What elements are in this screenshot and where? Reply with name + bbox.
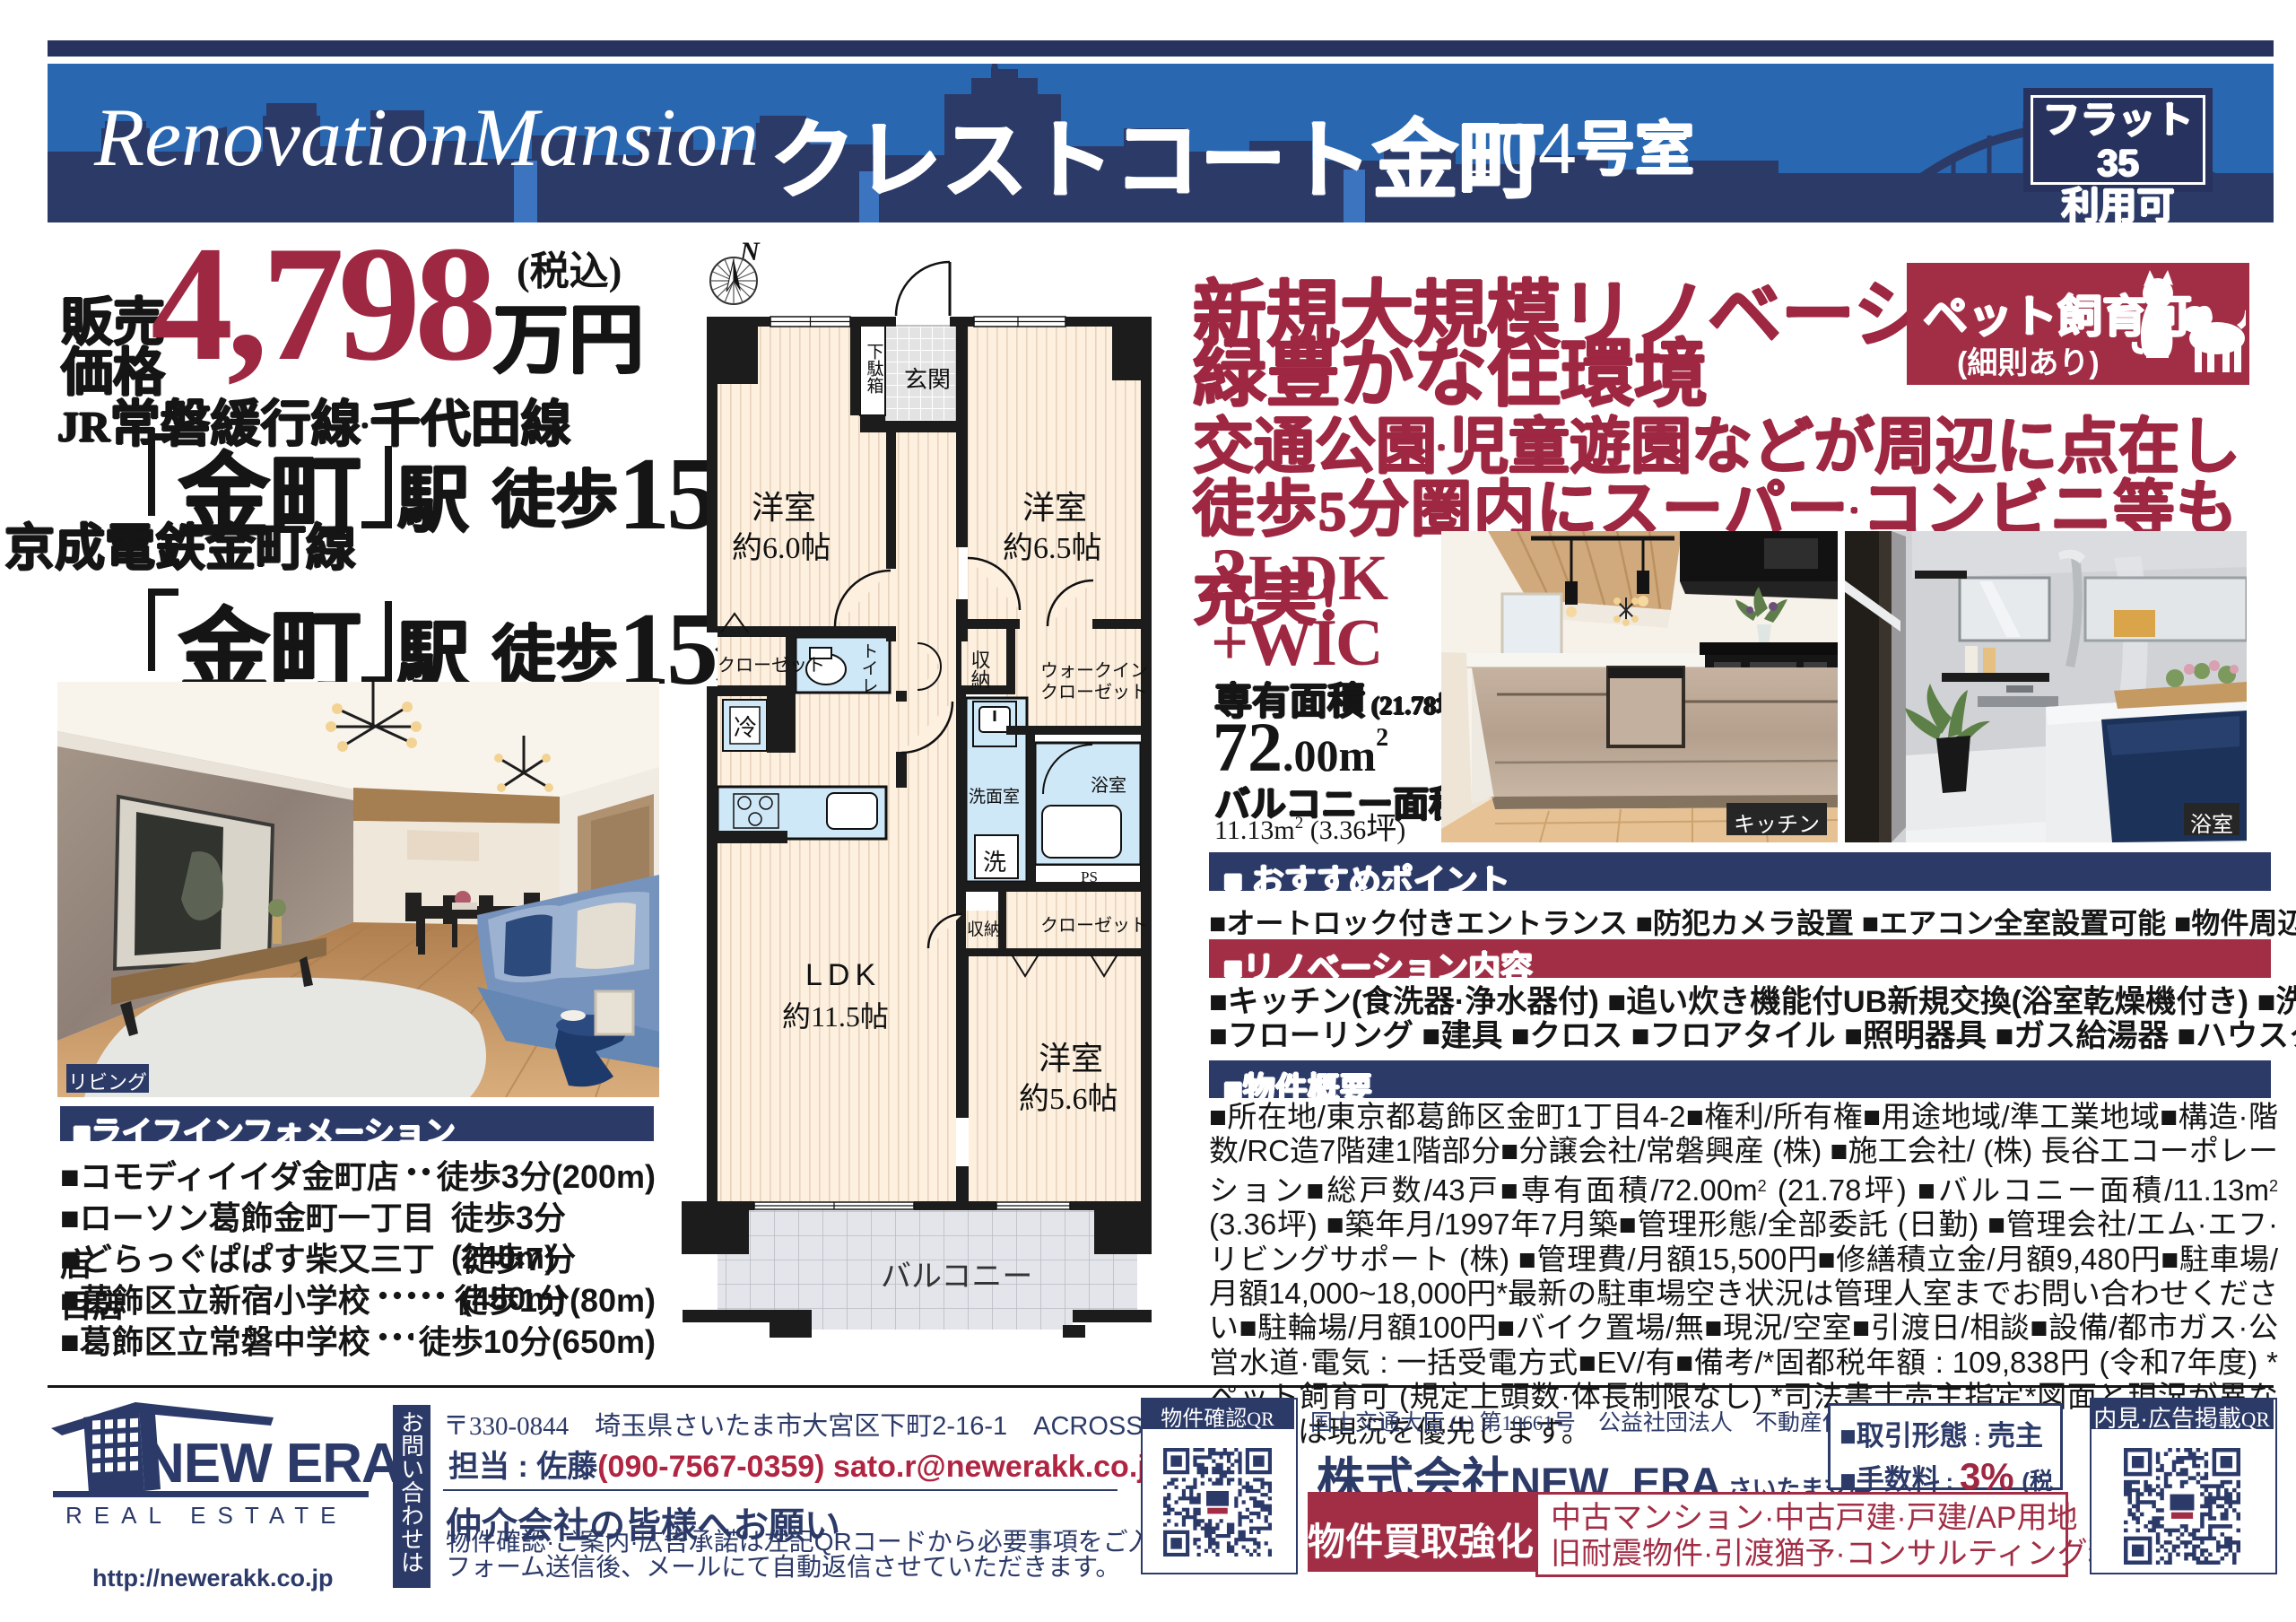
svg-text:約5.6帖: 約5.6帖 — [1019, 1082, 1118, 1116]
svg-text:クローゼット: クローゼット — [717, 655, 825, 676]
svg-text:浴室: 浴室 — [1091, 775, 1126, 796]
svg-text:約6.0帖: 約6.0帖 — [732, 531, 831, 565]
svg-text:ウォークイン: ウォークイン — [1040, 660, 1148, 681]
svg-text:http://newerakk.co.jp: http://newerakk.co.jp — [92, 1565, 334, 1591]
svg-text:収納: 収納 — [967, 920, 1001, 939]
svg-text:冷: 冷 — [734, 714, 757, 741]
svg-text:クローゼット: クローゼット — [1040, 915, 1148, 936]
svg-text:約11.5帖: 約11.5帖 — [782, 1000, 889, 1033]
svg-text:下駄箱: 下駄箱 — [865, 343, 884, 394]
svg-text:洗面室: 洗面室 — [969, 787, 1020, 807]
svg-text:バルコニー: バルコニー — [881, 1260, 1032, 1294]
svg-text:クローゼット: クローゼット — [1040, 682, 1148, 702]
svg-text:収納: 収納 — [969, 650, 991, 689]
svg-text:トイレ: トイレ — [859, 642, 878, 693]
svg-text:約6.5帖: 約6.5帖 — [1003, 531, 1102, 565]
svg-text:洋室: 洋室 — [1022, 489, 1087, 526]
svg-text:REAL ESTATE: REAL ESTATE — [65, 1502, 347, 1529]
svg-text:玄関: 玄関 — [904, 366, 951, 393]
svg-text:NEW ERA: NEW ERA — [144, 1433, 401, 1495]
svg-text:洋室: 洋室 — [1039, 1040, 1103, 1077]
svg-text:LDK: LDK — [805, 958, 881, 992]
svg-text:洗: 洗 — [983, 849, 1006, 876]
svg-text:洋室: 洋室 — [752, 489, 816, 526]
